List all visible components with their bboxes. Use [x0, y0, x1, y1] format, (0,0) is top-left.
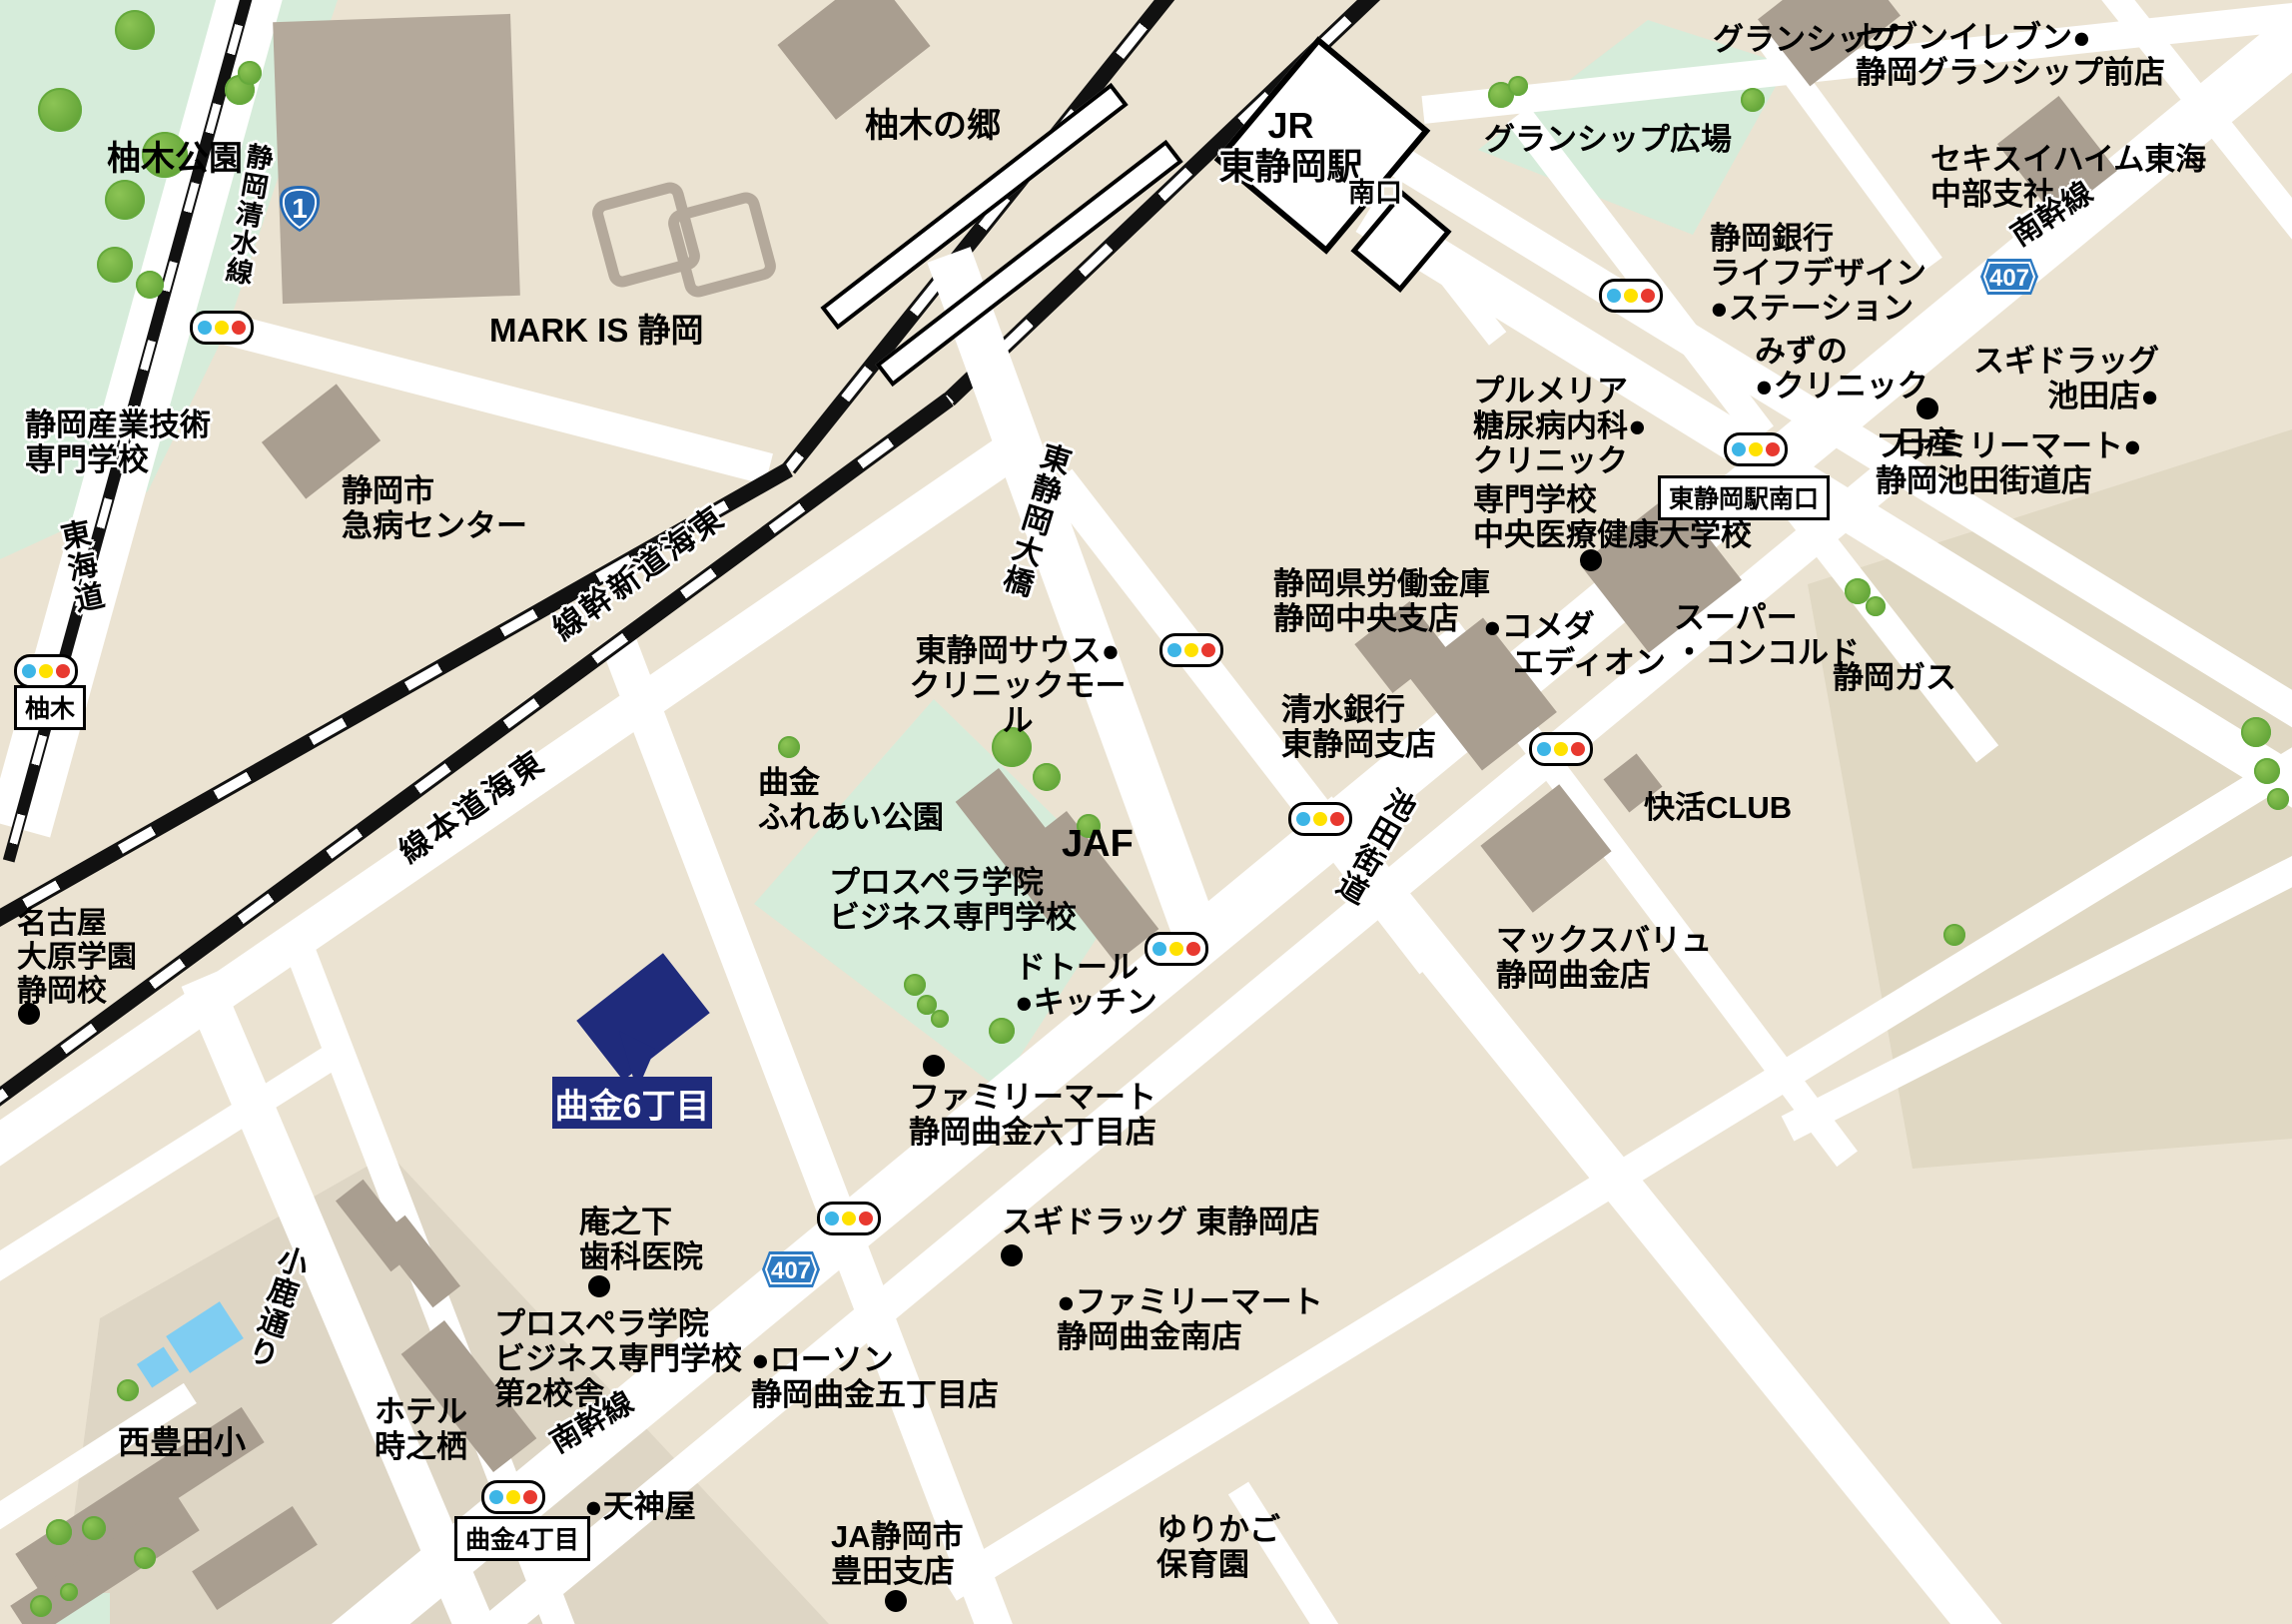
label-komeda: ●コメダ: [1483, 609, 1595, 644]
tree: [904, 974, 926, 996]
tree: [60, 1583, 78, 1601]
tree: [1508, 76, 1528, 96]
label-tenjinya: ●天神屋: [584, 1489, 696, 1524]
tree: [1943, 924, 1965, 946]
tree: [238, 61, 262, 85]
tree: [115, 10, 155, 50]
traffic-signal-icon: [1599, 279, 1663, 313]
tree: [1741, 88, 1765, 112]
label-jr-station: JR 東静岡駅: [1208, 106, 1373, 187]
traffic-signal-icon: [14, 654, 78, 688]
label-shimizu-bank: 清水銀行 東静岡支店: [1281, 692, 1436, 762]
poi-dot: [1001, 1244, 1023, 1266]
label-lawson: ●ローソン 静岡曲金五丁目店: [751, 1342, 999, 1412]
tree: [46, 1519, 72, 1545]
label-nagoya-ohara: 名古屋 大原学園 静岡校: [17, 907, 137, 1009]
label-yurikago: ゆりかご 保育園: [1156, 1512, 1280, 1582]
tree: [778, 736, 800, 758]
tree: [82, 1516, 106, 1540]
traffic-signal-icon: [1529, 732, 1593, 766]
highlight-label: 曲金6丁目: [552, 1077, 712, 1129]
tree: [2267, 788, 2289, 810]
label-granship-plaza: グランシップ広場: [1484, 122, 1732, 157]
label-magarikane-park: 曲金 ふれあい公園: [758, 765, 944, 835]
sign-station-south: 東静岡駅南口: [1658, 475, 1830, 520]
svg-text:407: 407: [771, 1257, 811, 1284]
tree: [2241, 717, 2271, 747]
tree: [931, 1010, 949, 1028]
traffic-signal-icon: [1159, 633, 1223, 667]
label-yunokinosato: 柚木の郷: [865, 107, 1001, 145]
tree: [38, 88, 82, 132]
traffic-signal-icon: [1288, 802, 1352, 836]
poi-dot: [923, 1055, 945, 1077]
poi-dot: [1916, 398, 1938, 419]
label-mizuno-clinic: みずの ●クリニック: [1755, 334, 1928, 404]
label-ja-toyoda: JA静岡市 豊田支店: [831, 1519, 964, 1589]
label-hotel: ホテル 時之栖: [375, 1394, 467, 1464]
route407-badge: 407: [1977, 253, 2041, 301]
poi-dot: [1580, 549, 1602, 571]
tree: [136, 271, 164, 299]
traffic-signal-icon: [1145, 932, 1208, 966]
label-honsen: 線本道海東: [392, 743, 551, 869]
label-shizuoka-bank: 静岡銀行 ライフデザイン ●ステーション: [1710, 221, 1926, 326]
label-doutor: ドトール ●キッチン: [1015, 950, 1157, 1020]
tree: [97, 247, 133, 283]
label-edion: エディオン: [1513, 645, 1666, 680]
label-jaf: JAF: [1062, 823, 1134, 866]
label-prospera: プロスペラ学院 ビジネス専門学校: [829, 865, 1077, 935]
building-mark-is: [273, 14, 520, 304]
label-sangyo-tech: 静岡産業技術 専門学校: [25, 407, 211, 477]
label-kaikatsu: 快活CLUB: [1644, 790, 1792, 825]
label-sugi-higashi: スギドラッグ 東静岡店: [1002, 1205, 1320, 1239]
route407-badge: 407: [759, 1245, 823, 1293]
label-famima-ikeda: ファミリーマート● 静岡池田街道店: [1876, 428, 2142, 498]
label-annoshita: 庵之下 歯科医院: [579, 1205, 703, 1274]
traffic-signal-icon: [190, 311, 254, 345]
route1-badge: 1: [277, 184, 323, 234]
sign-yunoki: 柚木: [14, 685, 86, 730]
svg-text:407: 407: [1989, 265, 2029, 292]
tree: [989, 1018, 1015, 1044]
svg-text:1: 1: [292, 193, 308, 224]
label-maxvalu: マックスバリュ 静岡曲金店: [1496, 923, 1712, 993]
label-rokin: 静岡県労働金庫 静岡中央支店: [1273, 566, 1490, 636]
sign-magarikane4: 曲金4丁目: [454, 1516, 590, 1561]
poi-dot: [588, 1275, 610, 1297]
traffic-signal-icon: [817, 1202, 881, 1235]
label-plumeria: プルメリア 糖尿病内科● クリニック: [1473, 374, 1647, 478]
label-famima-south: ●ファミリーマート 静岡曲金南店: [1057, 1284, 1323, 1354]
building-yunokinosato: [777, 0, 930, 120]
label-shizuoka-gas: 静岡ガス: [1833, 660, 1956, 695]
tree: [2254, 758, 2280, 784]
label-sugi-ikeda: スギドラッグ 池田店●: [1947, 344, 2159, 413]
label-nishitoyoda: 西豊田小: [118, 1424, 246, 1460]
tree: [1033, 763, 1061, 791]
tree: [30, 1595, 52, 1617]
poi-dot: [885, 1590, 907, 1612]
label-famima-6chome: ファミリーマート 静岡曲金六丁目店: [909, 1080, 1156, 1150]
poi-dot: [18, 1003, 40, 1025]
label-mark-is: MARK IS 静岡: [489, 312, 704, 349]
tree: [1866, 596, 1886, 616]
tree: [134, 1547, 156, 1569]
label-south-clinic-mall: 東静岡サウス● クリニックモール: [899, 633, 1137, 738]
map-canvas: 曲金6丁目 柚木公園 静岡清水線 静岡産業技術 専門学校 東海道 MARK IS…: [0, 0, 2292, 1624]
label-seven-eleven: セブンイレブン● 静岡グランシップ前店: [1856, 20, 2165, 90]
traffic-signal-icon: [481, 1480, 545, 1514]
label-minamiguchi: 南口: [1348, 178, 1402, 209]
label-yunoki-park: 柚木公園: [107, 140, 243, 178]
tree: [117, 1379, 139, 1401]
label-kyubyo-center: 静岡市 急病センター: [342, 473, 527, 543]
tree: [105, 180, 145, 220]
traffic-signal-icon: [1724, 432, 1788, 466]
